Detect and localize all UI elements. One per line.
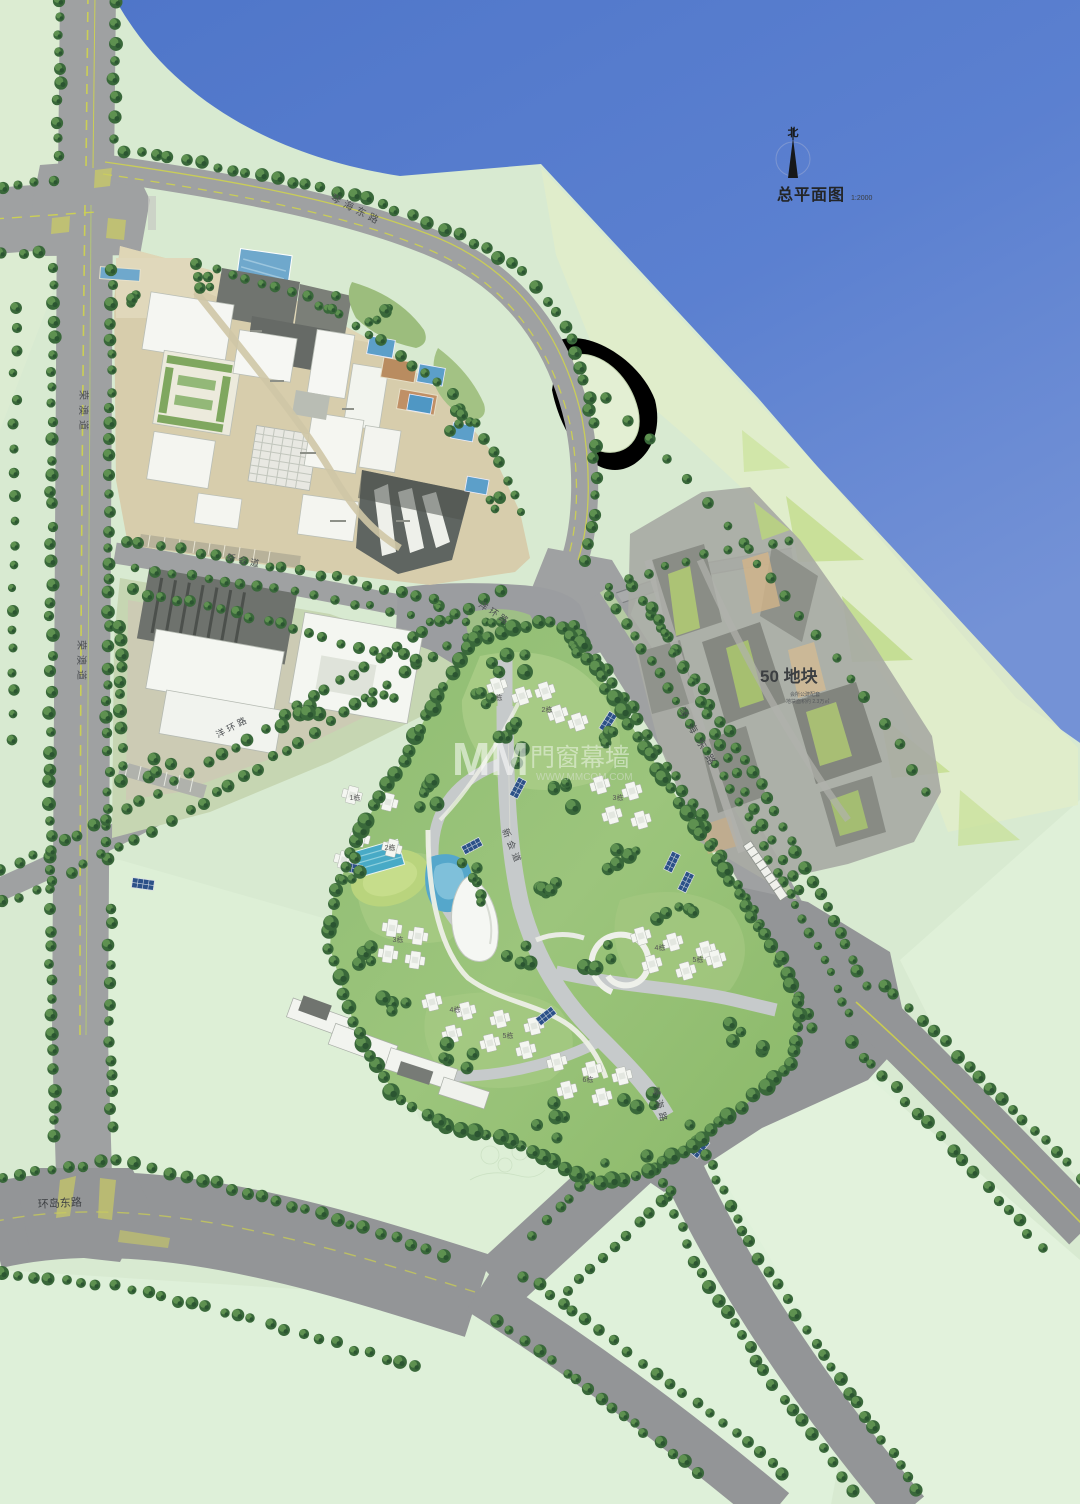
svg-text:荣澳道: 荣澳道 bbox=[75, 640, 88, 685]
svg-text:4栋: 4栋 bbox=[450, 1005, 461, 1014]
svg-text:4栋: 4栋 bbox=[655, 943, 666, 952]
svg-text:50 地块: 50 地块 bbox=[760, 666, 819, 686]
svg-text:5栋: 5栋 bbox=[503, 1031, 514, 1040]
svg-text:2栋: 2栋 bbox=[385, 843, 396, 852]
svg-text:地块面积约 2.3万㎡: 地块面积约 2.3万㎡ bbox=[786, 698, 829, 705]
svg-text:WWW.MMCOM.COM: WWW.MMCOM.COM bbox=[536, 772, 633, 783]
svg-text:荣澳道: 荣澳道 bbox=[77, 390, 90, 435]
svg-text:总平面图: 总平面图 bbox=[777, 185, 845, 204]
svg-text:門窗幕墙: 門窗幕墙 bbox=[530, 744, 630, 772]
svg-text:5栋: 5栋 bbox=[693, 955, 704, 964]
svg-text:1:2000: 1:2000 bbox=[851, 195, 873, 202]
svg-text:1栋: 1栋 bbox=[350, 793, 361, 802]
svg-text:6栋: 6栋 bbox=[583, 1075, 594, 1084]
svg-text:3栋: 3栋 bbox=[613, 793, 624, 802]
svg-text:3栋: 3栋 bbox=[393, 935, 404, 944]
svg-text:2栋: 2栋 bbox=[542, 705, 553, 714]
svg-text:北: 北 bbox=[788, 125, 799, 139]
svg-text:MM: MM bbox=[452, 733, 529, 785]
svg-text:会所公建配套: 会所公建配套 bbox=[790, 691, 820, 698]
